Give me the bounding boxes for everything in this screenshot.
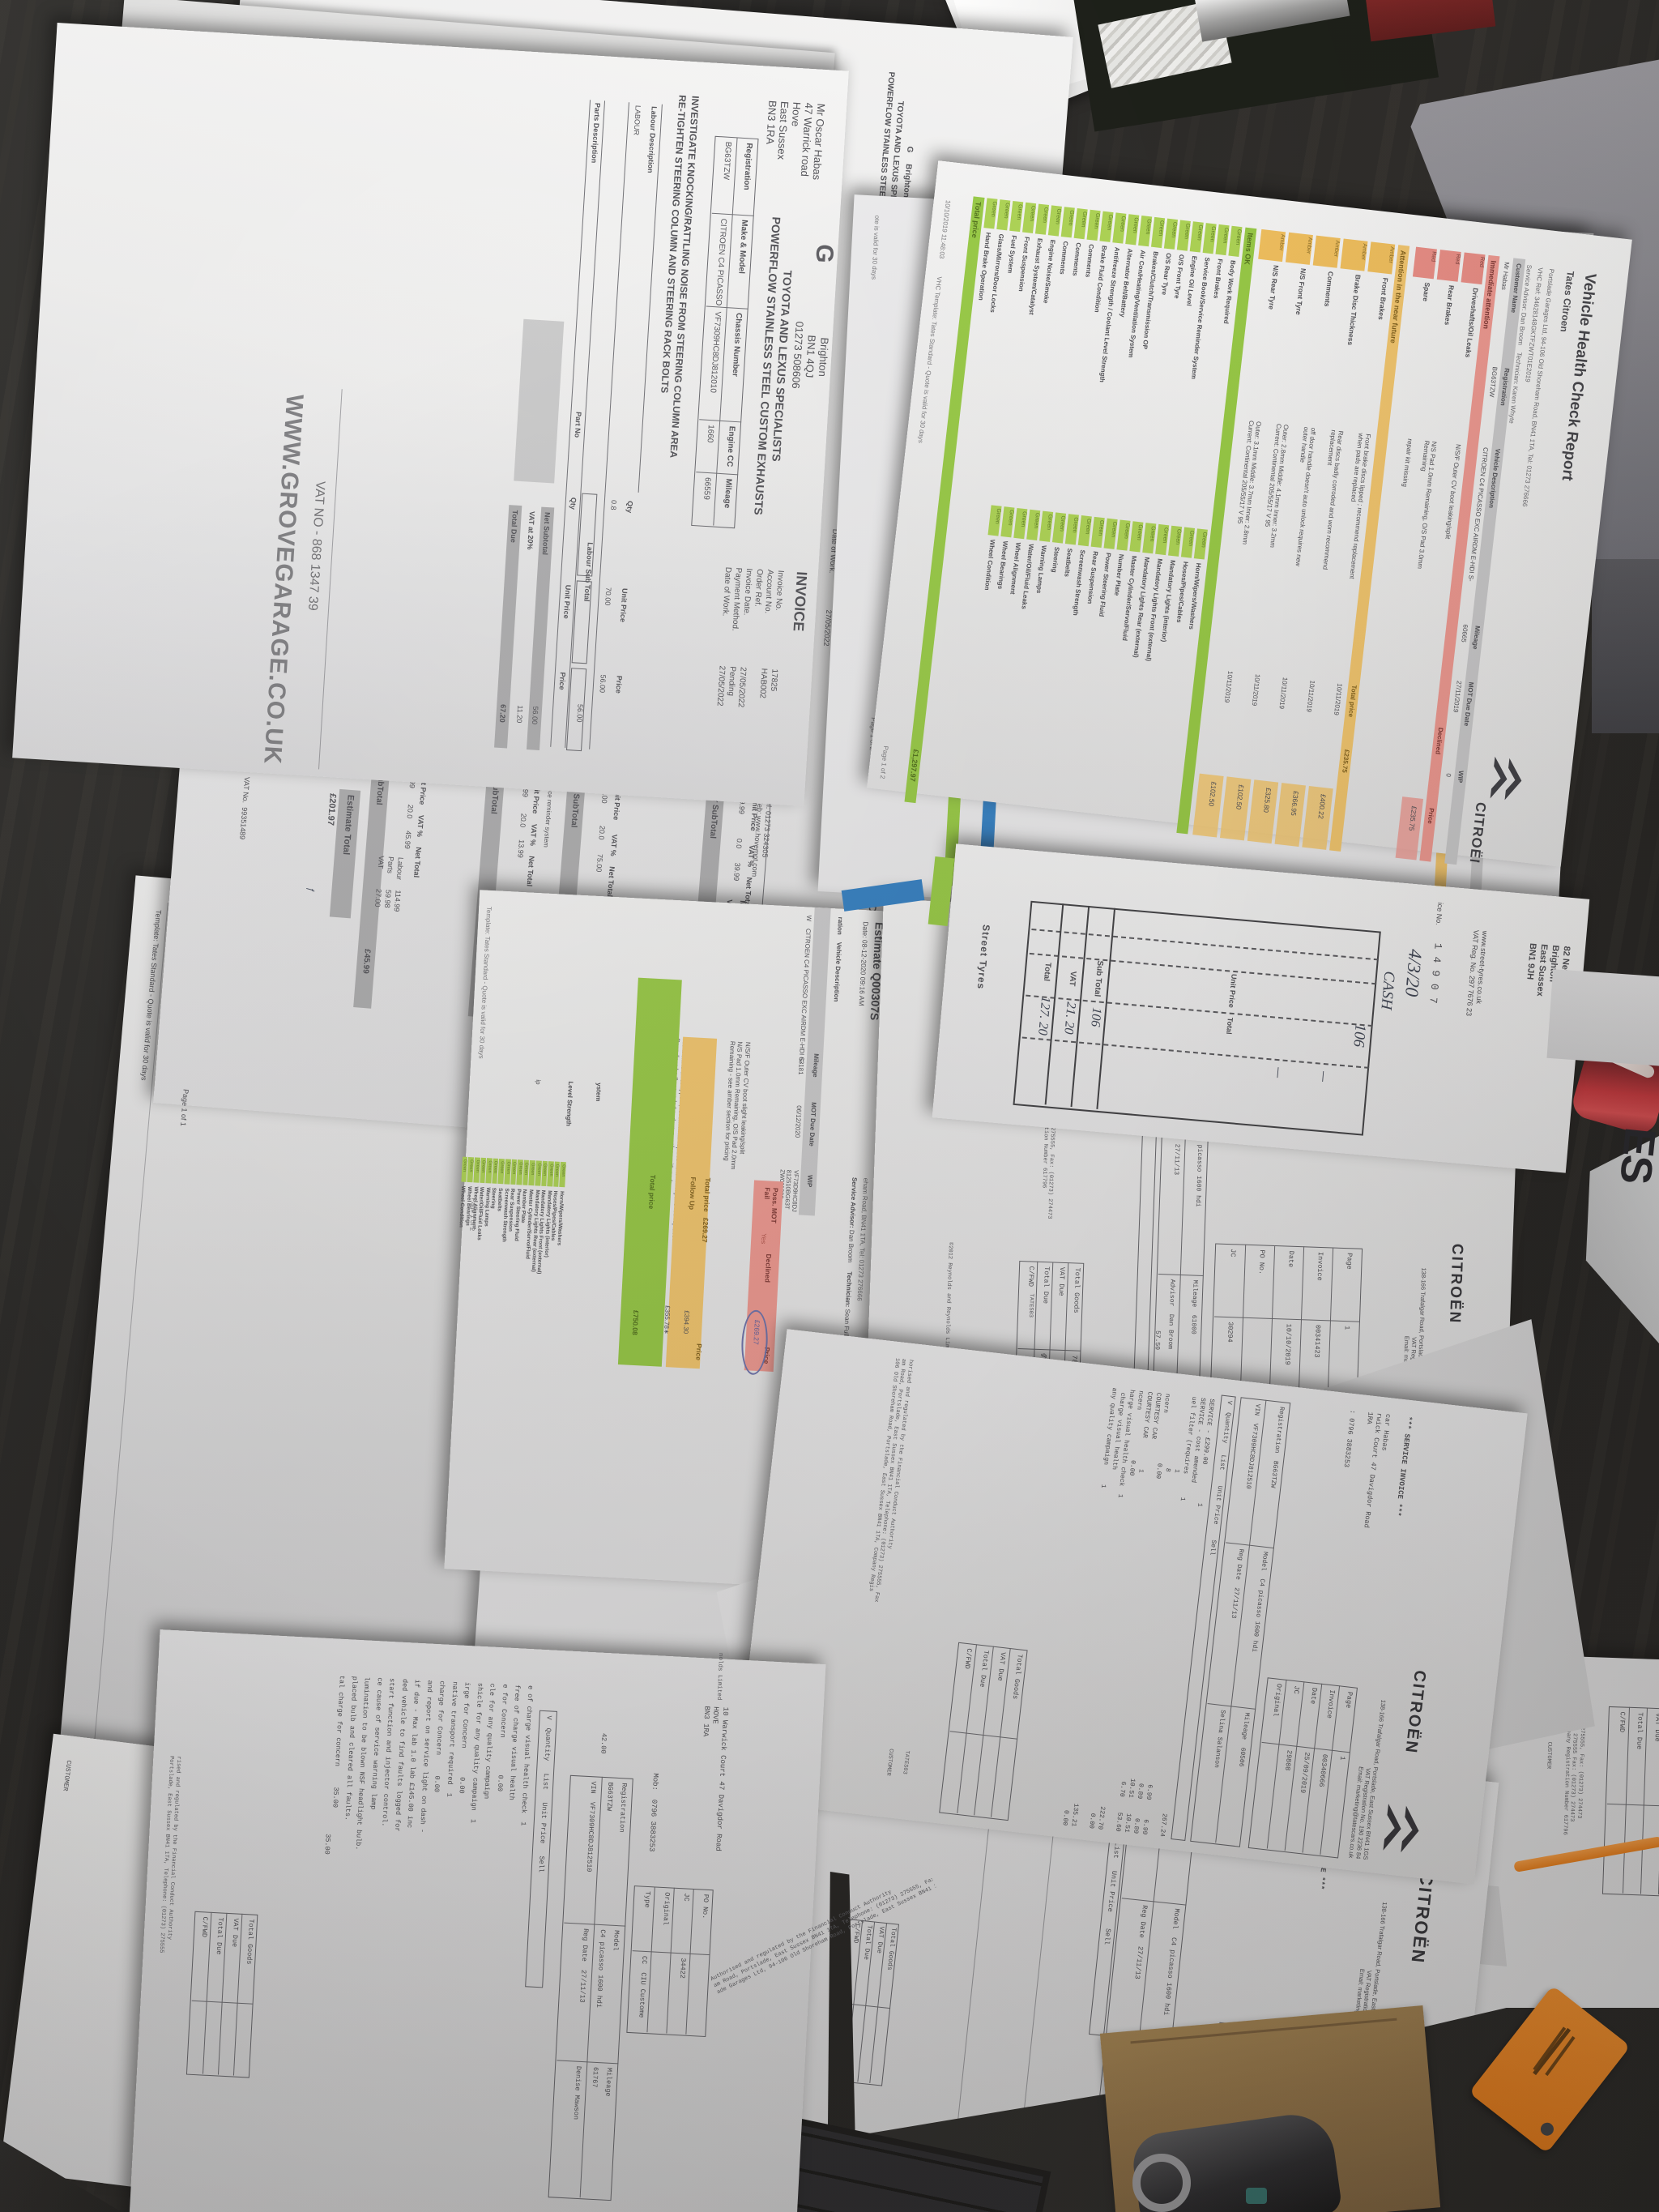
svg-text:CITROËN: CITROËN — [1401, 1669, 1430, 1755]
svg-text:CITROËN: CITROËN — [1407, 1872, 1437, 1965]
svg-text:CITROËN: CITROËN — [1446, 1244, 1465, 1325]
svg-text:CITROËN: CITROËN — [1467, 801, 1489, 866]
